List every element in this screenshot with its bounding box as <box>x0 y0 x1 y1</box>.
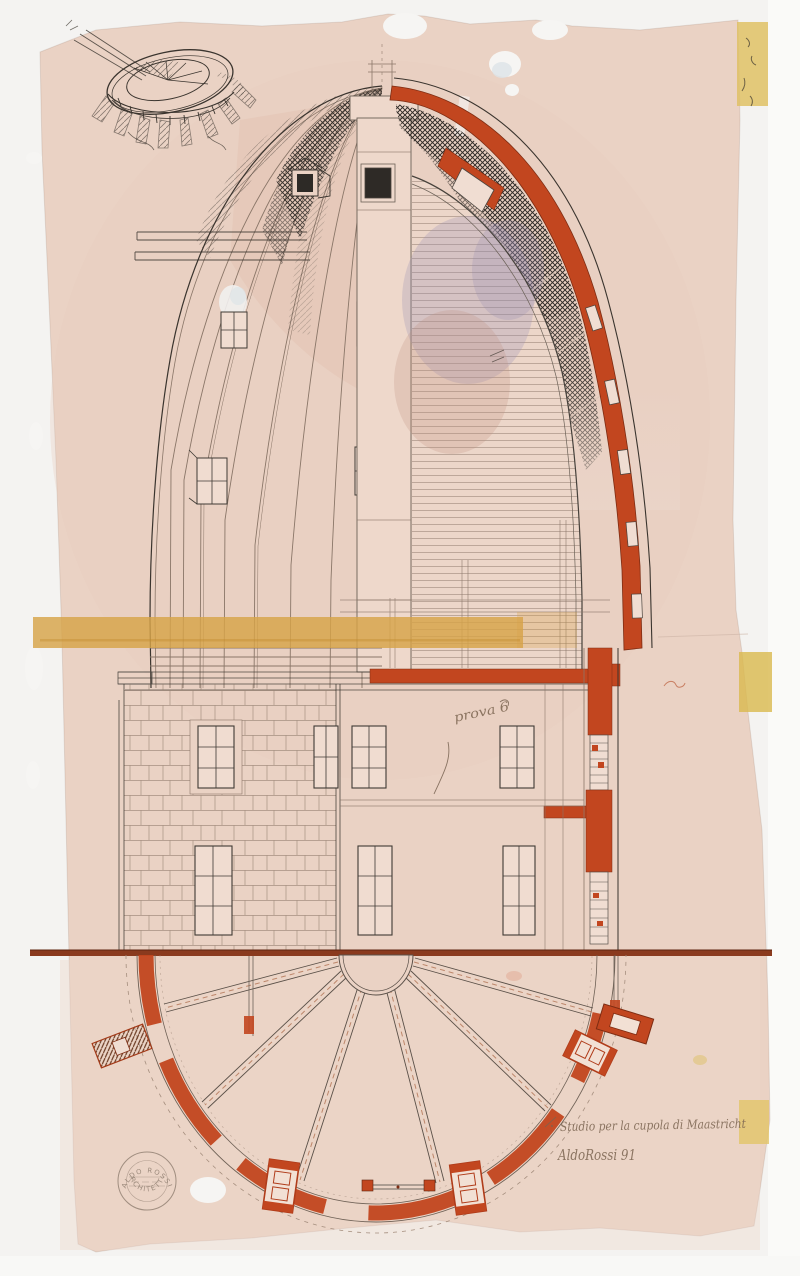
inscription-signature: AldoRossi 91 <box>556 1146 636 1164</box>
scan-margin-right <box>768 0 800 1276</box>
scanned-drawing: prova 6 <box>0 0 800 1276</box>
yellow-spot <box>693 1055 707 1065</box>
wall-ladder-upper <box>590 735 608 790</box>
scan-margin-bottom <box>0 1256 800 1276</box>
ochre-band <box>33 612 577 648</box>
wall-ladder-lower <box>590 872 608 944</box>
tape-right-edge <box>739 652 772 712</box>
tape-top-right <box>737 22 768 106</box>
pink-smudge <box>506 971 522 981</box>
lantern-window <box>365 168 391 198</box>
